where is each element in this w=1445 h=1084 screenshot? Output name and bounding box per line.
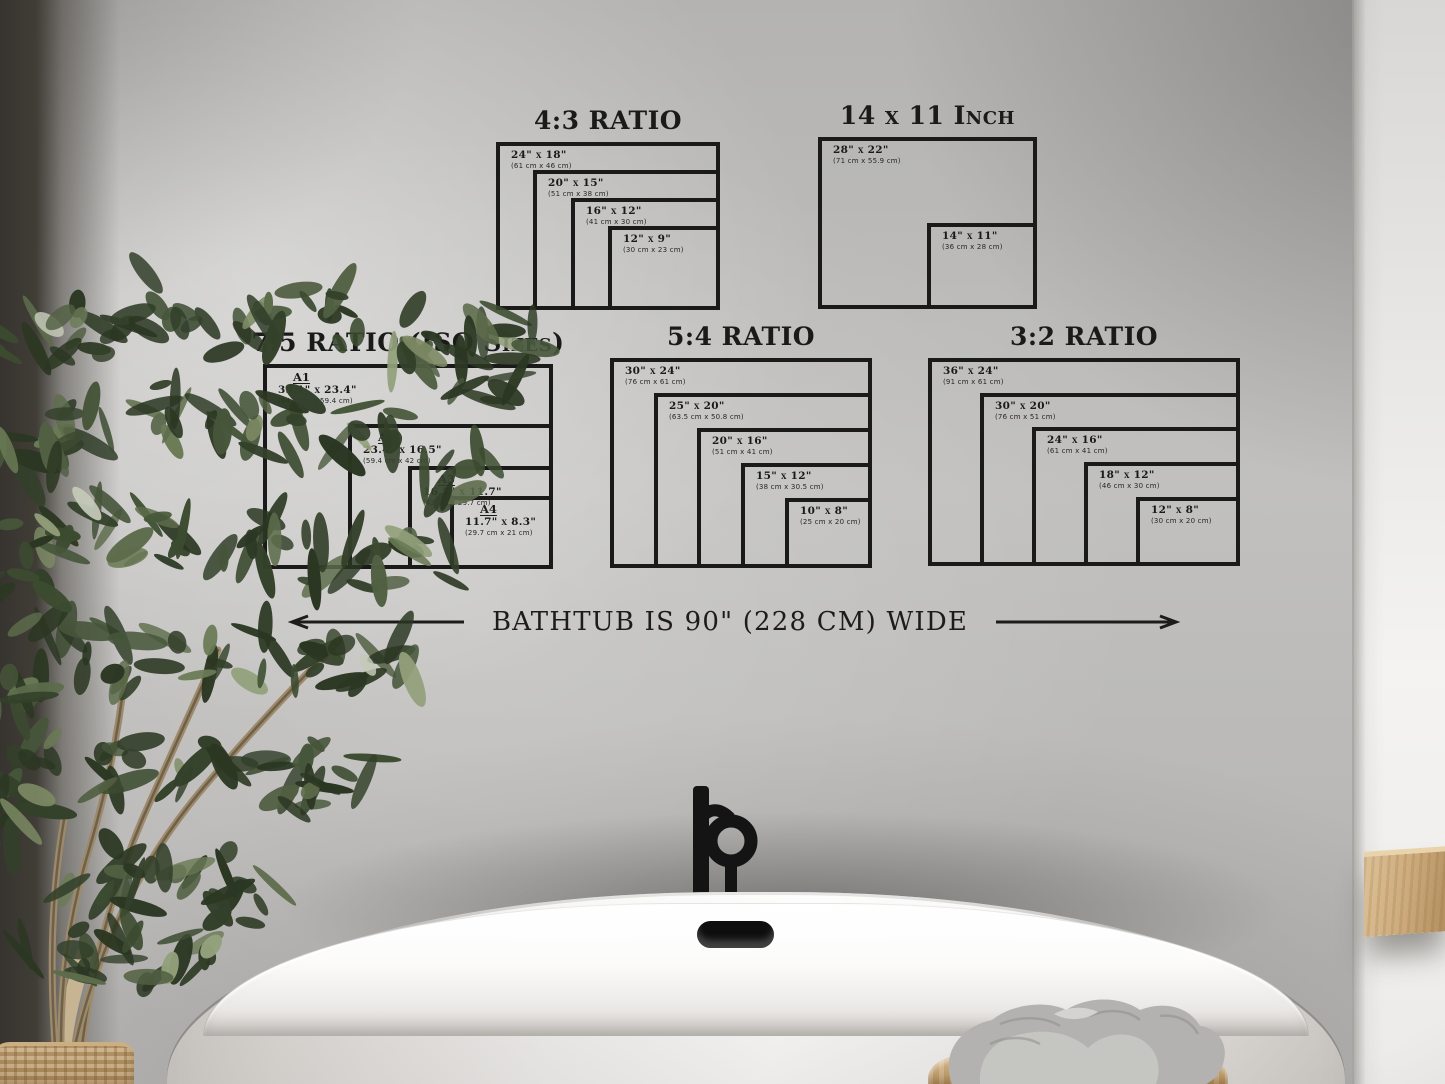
gray-towel xyxy=(0,0,1445,1084)
bathroom-size-guide-photo: BATHTUB IS 90" (228 CM) WIDE 4:3 RATIO24… xyxy=(0,0,1445,1084)
